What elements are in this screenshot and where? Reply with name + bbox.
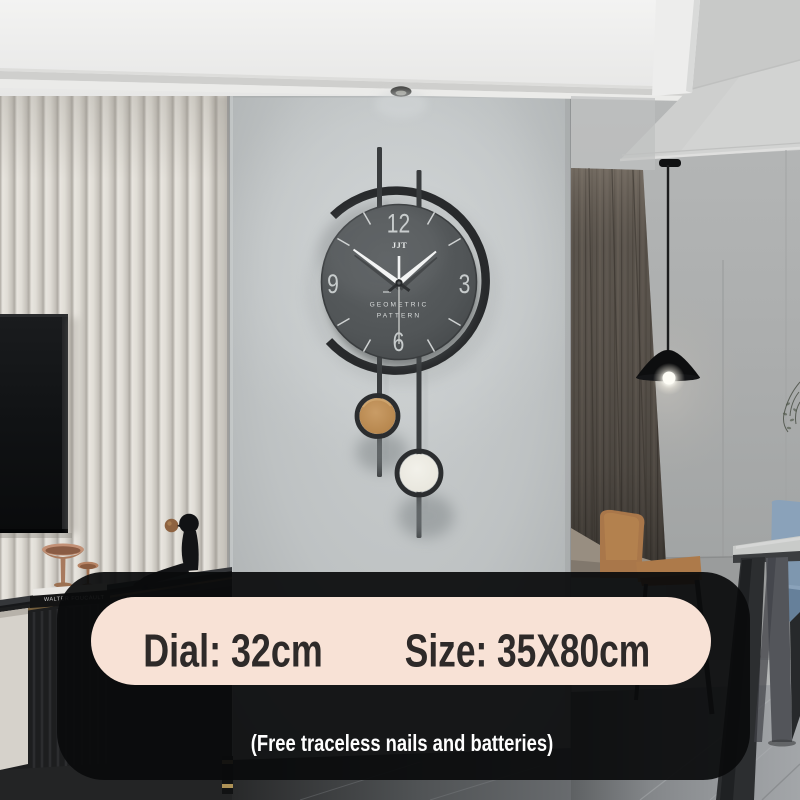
svg-text:3: 3 — [459, 270, 471, 300]
svg-text:Dial: 32cm: Dial: 32cm — [143, 625, 322, 676]
svg-text:9: 9 — [327, 270, 339, 300]
svg-text:JJT: JJT — [392, 240, 407, 250]
svg-text:12: 12 — [387, 209, 410, 239]
svg-text:Size: 35X80cm: Size: 35X80cm — [405, 625, 650, 677]
svg-text:(Free traceless nails and batt: (Free traceless nails and batteries) — [251, 731, 553, 756]
